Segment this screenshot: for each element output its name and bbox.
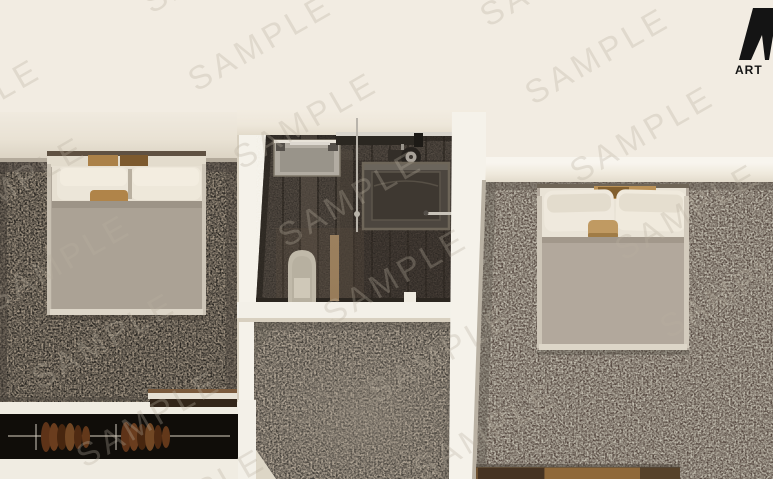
svg-text:ART: ART	[735, 63, 763, 77]
